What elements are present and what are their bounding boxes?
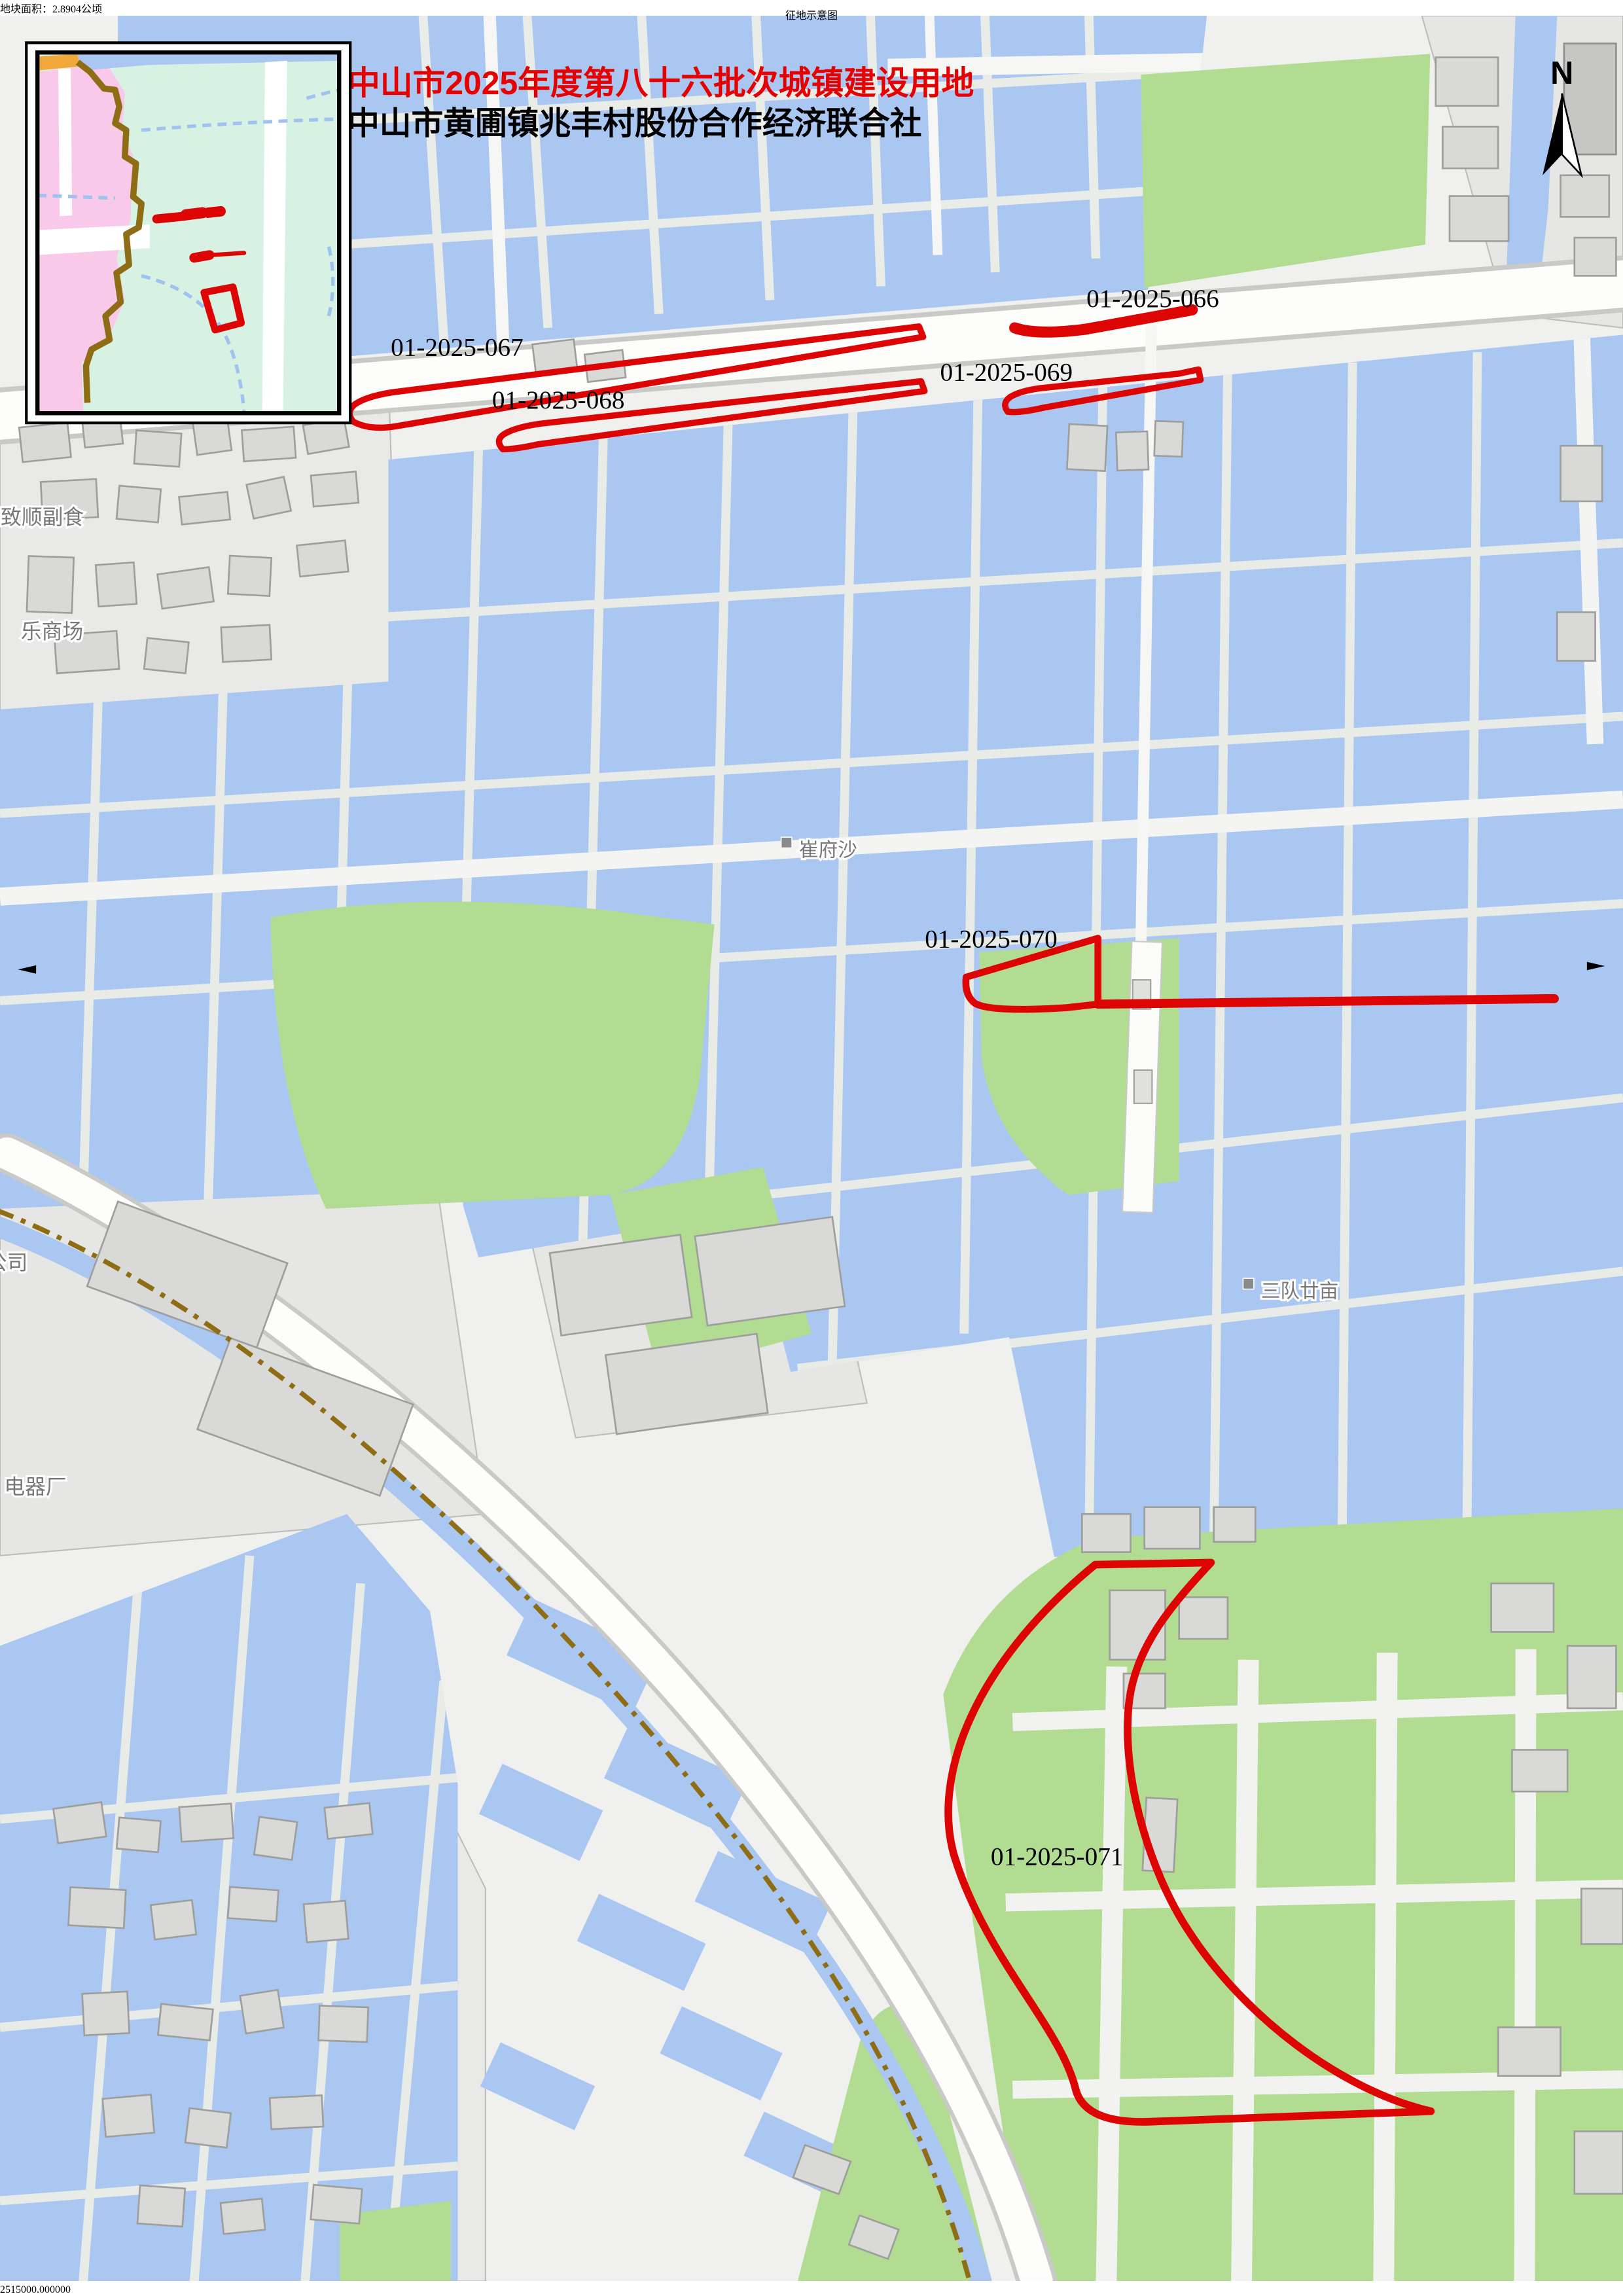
place-label-sanduiganmu: 三队廿亩 xyxy=(1261,1281,1339,1302)
parcel-outline-070-spur xyxy=(1098,999,1554,1004)
map-sheet: 征地示意图 地块面积：2.8904公顷 xyxy=(0,0,1623,2296)
place-marker xyxy=(781,838,791,848)
grid-coord-left: 2515000.000000 xyxy=(0,2284,1623,2296)
parcel-label-067: 01-2025-067 xyxy=(391,333,524,361)
page-title: 征地示意图 xyxy=(0,7,1623,22)
place-label-leshangchang: 乐商场 xyxy=(21,620,83,643)
grid-coord-left-decimals: .000000 xyxy=(37,2284,71,2295)
place-label-dianqichang: 电器厂 xyxy=(4,1475,66,1498)
parcel-label-070: 01-2025-070 xyxy=(925,925,1058,953)
north-label: N xyxy=(1550,56,1573,91)
place-label-zhishunfushi: 致顺副食 xyxy=(1,505,84,529)
parcel-label-069: 01-2025-069 xyxy=(940,358,1073,386)
inset-map xyxy=(26,43,350,423)
place-label-gongsi: 公司 xyxy=(0,1251,27,1274)
place-label-cuifusha: 崔府沙 xyxy=(799,840,857,861)
batch-title: 中山市2025年度第八十六批次城镇建设用地 xyxy=(348,65,974,101)
map-frame: 崔府沙 三队廿亩 致顺副食 乐商场 公司 电器厂 01-2025-066 xyxy=(0,16,1623,2284)
place-marker xyxy=(1243,1279,1253,1289)
parcel-label-068: 01-2025-068 xyxy=(492,386,625,414)
parcel-label-071: 01-2025-071 xyxy=(991,1842,1124,1871)
map-canvas: 崔府沙 三队廿亩 致顺副食 乐商场 公司 电器厂 01-2025-066 xyxy=(0,16,1623,2281)
grid-coord-left-main: 2515000 xyxy=(0,2284,37,2295)
parcel-label-066: 01-2025-066 xyxy=(1086,285,1219,313)
org-title: 中山市黄圃镇兆丰村股份合作经济联合社 xyxy=(348,106,921,141)
